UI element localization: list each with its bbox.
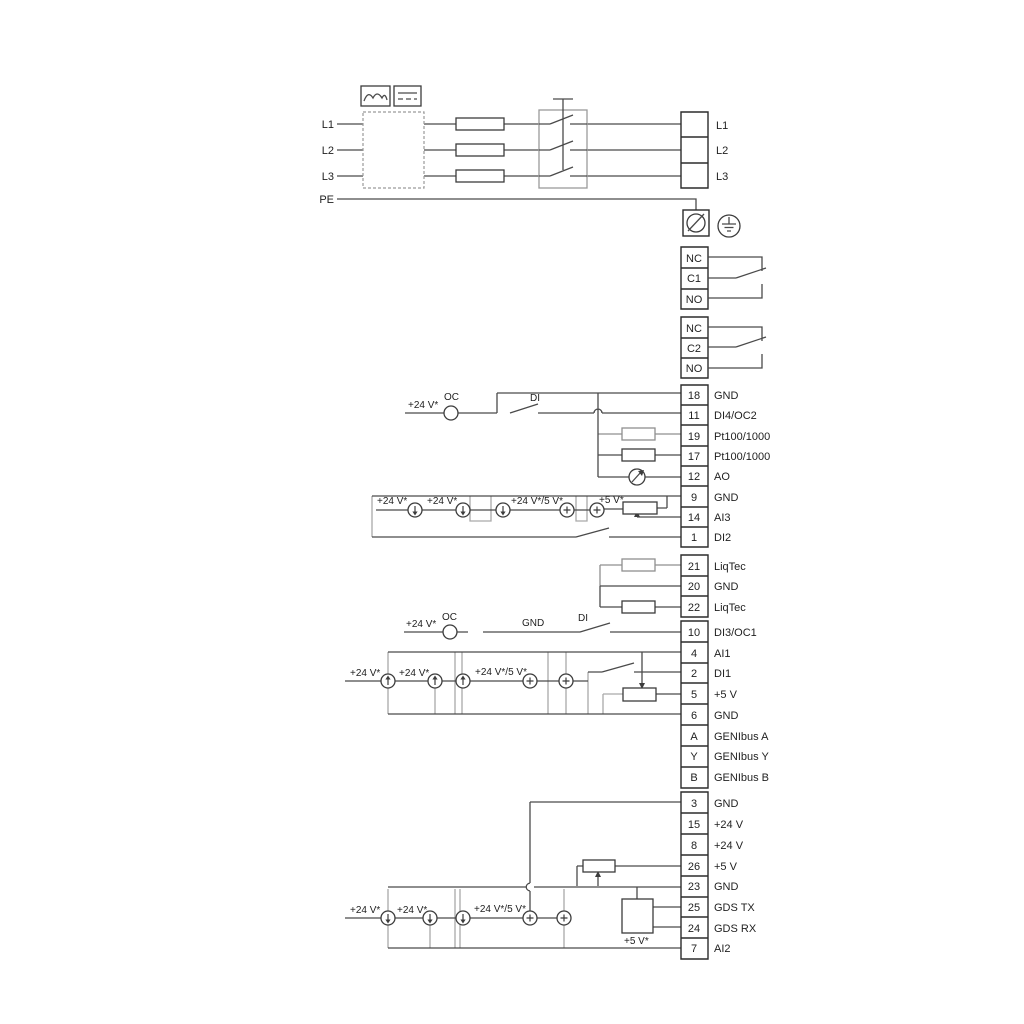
supply-label: +24 V* <box>406 619 436 630</box>
terminal-label: GDS TX <box>714 902 755 914</box>
current-source-up-icon <box>381 674 395 688</box>
terminal-number: 25 <box>688 902 700 914</box>
supply-label: +5 V* <box>599 495 624 506</box>
terminal-number: 24 <box>688 923 700 935</box>
terminal-number: 14 <box>688 512 700 524</box>
fuse-symbol <box>456 170 504 182</box>
terminal-label: GDS RX <box>714 923 757 935</box>
terminal-number: A <box>690 731 698 743</box>
terminal-number: 1 <box>691 532 697 544</box>
terminal-label: +24 V <box>714 819 744 831</box>
terminal-label: GENIbus Y <box>714 751 769 763</box>
liqtec-sensor-symbol <box>622 601 655 613</box>
groupB-option-brackets <box>388 652 623 714</box>
terminal-number: 8 <box>691 840 697 852</box>
input-line-label: PE <box>319 194 334 206</box>
schematic-canvas: L1 L2 L3 PE L1 L2 L3 NC C1 NO NC C2 NO +… <box>0 0 1024 1024</box>
relay-terminal-label: NC <box>686 253 702 265</box>
voltage-source-icon <box>559 674 573 688</box>
terminal-label: GENIbus A <box>714 731 769 743</box>
terminal-label: DI2 <box>714 532 731 544</box>
oc-label: OC <box>442 612 457 623</box>
terminal-label: DI3/OC1 <box>714 627 757 639</box>
supply-label: +24 V* <box>397 905 427 916</box>
current-source-down-icon <box>408 503 422 517</box>
terminal-number: 17 <box>688 451 700 463</box>
supply-label: +24 V* <box>350 905 380 916</box>
input-line-label: L1 <box>322 119 334 131</box>
relay-terminal-label: C1 <box>687 273 701 285</box>
terminal-number: Y <box>690 751 698 763</box>
current-source-down-icon <box>456 503 470 517</box>
terminal-label: GND <box>714 710 739 722</box>
terminal-number: 2 <box>691 668 697 680</box>
relay-terminal-label: NO <box>686 294 703 306</box>
supply-label: +24 V* <box>399 668 429 679</box>
terminal-number: 21 <box>688 561 700 573</box>
terminal-label: DI1 <box>714 668 731 680</box>
wiring-diagram: L1 L2 L3 PE L1 L2 L3 NC C1 NO NC C2 NO +… <box>0 0 1024 1024</box>
mains-output-terminal-block <box>681 112 708 188</box>
emc-filter-box <box>363 112 424 188</box>
potentiometer-symbol <box>623 688 656 701</box>
terminal-number: 15 <box>688 819 700 831</box>
current-source-up-icon <box>456 674 470 688</box>
supply-label: +24 V*/5 V* <box>474 904 526 915</box>
open-collector-icon <box>443 625 457 639</box>
terminal-number: 3 <box>691 798 697 810</box>
liqtec-sensor-symbol <box>622 559 655 571</box>
supply-label: +5 V* <box>624 936 649 947</box>
terminal-label: Pt100/1000 <box>714 431 770 443</box>
terminal-label: GND <box>714 390 739 402</box>
relay2-contact <box>708 327 766 368</box>
potentiometer-symbol <box>583 860 615 872</box>
dc-symbol-box <box>394 86 421 106</box>
terminal-number: B <box>690 772 697 784</box>
terminal-label: GND <box>714 798 739 810</box>
terminal-label: Pt100/1000 <box>714 451 770 463</box>
supply-label: +24 V* <box>377 496 407 507</box>
terminal-label: LiqTec <box>714 561 746 573</box>
terminal-number: 22 <box>688 602 700 614</box>
terminal-number: 20 <box>688 581 700 593</box>
current-source-down-icon <box>381 911 395 925</box>
supply-label: +24 V*/5 V* <box>475 667 527 678</box>
di-label: DI <box>578 613 588 624</box>
output-line-label: L2 <box>716 145 728 157</box>
terminal-number: 11 <box>688 410 699 422</box>
input-line-label: L2 <box>322 145 334 157</box>
relay-terminal-label: NO <box>686 363 703 375</box>
terminal-label: +24 V <box>714 840 744 852</box>
supply-label: +24 V* <box>427 496 457 507</box>
pt100-sensor-symbol <box>622 449 655 461</box>
terminal-label: GENIbus B <box>714 772 769 784</box>
terminal-number: 26 <box>688 861 700 873</box>
output-line-label: L1 <box>716 120 728 132</box>
terminal-number: 5 <box>691 689 697 701</box>
terminal-number: 4 <box>691 648 697 660</box>
terminal-number: 23 <box>688 881 700 893</box>
terminal-label: AI2 <box>714 943 731 955</box>
relay-terminal-label: NC <box>686 323 702 335</box>
supply-label: +24 V* <box>350 668 380 679</box>
current-source-down-icon <box>496 503 510 517</box>
terminal-number: 19 <box>688 431 700 443</box>
gds-sensor-box <box>622 899 653 933</box>
terminal-number: 6 <box>691 710 697 722</box>
di-label: DI <box>530 393 540 404</box>
terminal-number: 9 <box>691 492 697 504</box>
oc-label: OC <box>444 392 459 403</box>
terminal-label: GND <box>714 881 739 893</box>
open-collector-icon <box>444 406 458 420</box>
terminal-label: AI1 <box>714 648 731 660</box>
voltage-source-icon <box>557 911 571 925</box>
terminal-number: 18 <box>688 390 700 402</box>
terminal-label: DI4/OC2 <box>714 410 757 422</box>
terminal-label: GND <box>714 581 739 593</box>
output-line-label: L3 <box>716 171 728 183</box>
terminal-label: AO <box>714 471 730 483</box>
fuse-symbol <box>456 144 504 156</box>
current-source-down-icon <box>456 911 470 925</box>
mains-wires <box>337 124 696 210</box>
supply-label: +24 V* <box>408 400 438 411</box>
terminal-label: +5 V <box>714 689 738 701</box>
terminal-number: 10 <box>688 627 700 639</box>
fuse-symbol <box>456 118 504 130</box>
terminal-number: 7 <box>691 943 697 955</box>
gnd-label: GND <box>522 618 544 629</box>
terminal-label: LiqTec <box>714 602 746 614</box>
input-line-label: L3 <box>322 171 334 183</box>
pt100-sensor-symbol <box>622 428 655 440</box>
current-source-up-icon <box>428 674 442 688</box>
terminal-number: 12 <box>688 471 700 483</box>
relay1-contact <box>708 257 766 298</box>
terminal-label: +5 V <box>714 861 738 873</box>
terminal-label: AI3 <box>714 512 731 524</box>
terminal-label: GND <box>714 492 739 504</box>
potentiometer-symbol <box>623 502 657 514</box>
supply-label: +24 V*/5 V* <box>511 496 563 507</box>
relay-terminal-label: C2 <box>687 343 701 355</box>
